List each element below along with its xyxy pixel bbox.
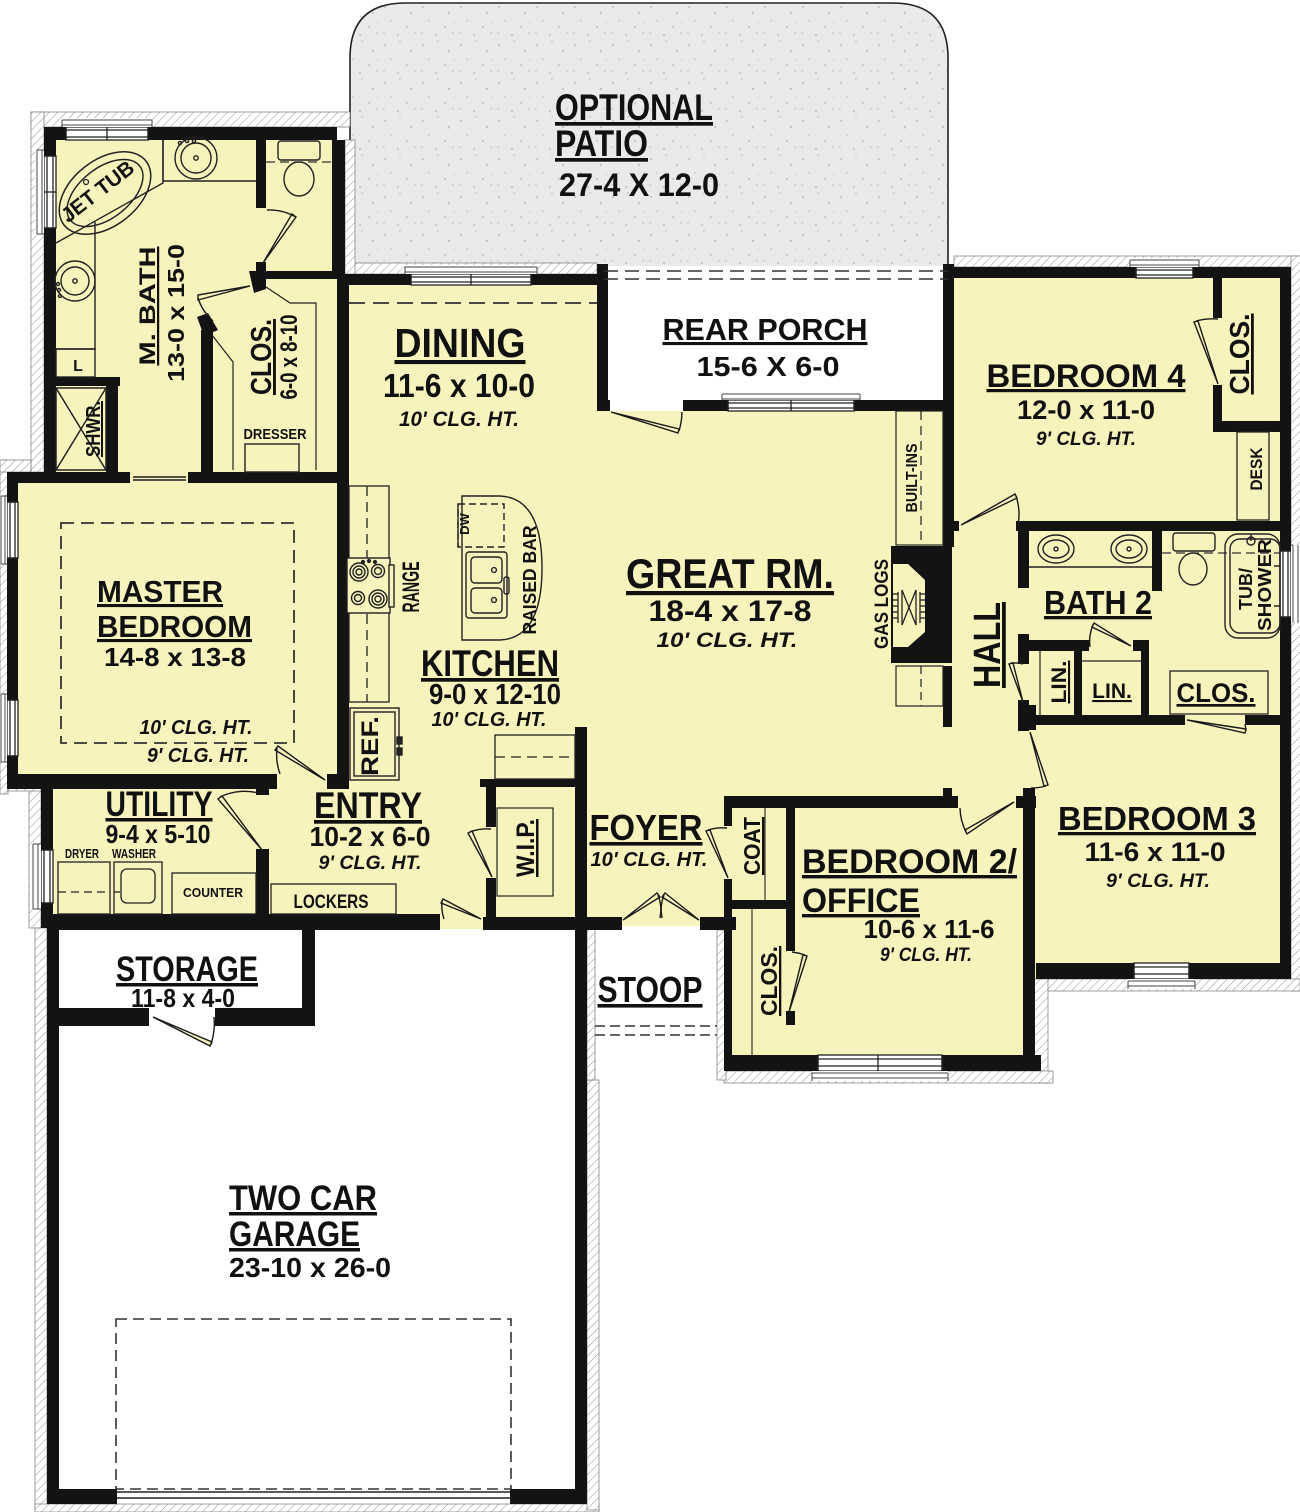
svg-text:10' CLG. HT.: 10' CLG. HT.	[399, 408, 519, 431]
svg-text:WASHER: WASHER	[112, 846, 156, 861]
svg-text:CLOS.: CLOS.	[246, 319, 278, 395]
svg-text:23-10 x 26-0: 23-10 x 26-0	[229, 1252, 391, 1283]
svg-text:9' CLG. HT.: 9' CLG. HT.	[147, 745, 249, 767]
svg-text:BATH 2: BATH 2	[1044, 584, 1152, 621]
svg-text:DESK: DESK	[1247, 447, 1266, 491]
svg-text:RANGE: RANGE	[398, 562, 425, 613]
svg-text:BEDROOM 4: BEDROOM 4	[987, 358, 1186, 394]
svg-text:11-8 x 4-0: 11-8 x 4-0	[131, 983, 235, 1013]
svg-text:BEDROOM 3: BEDROOM 3	[1058, 800, 1256, 837]
svg-text:HALL: HALL	[967, 602, 1009, 688]
svg-text:11-6 x 10-0: 11-6 x 10-0	[383, 367, 535, 404]
svg-text:LIN.: LIN.	[1048, 661, 1071, 704]
svg-text:CLOS.: CLOS.	[1224, 314, 1255, 395]
svg-text:11-6 x 11-0: 11-6 x 11-0	[1085, 837, 1226, 867]
svg-text:9-0 x 12-10: 9-0 x 12-10	[429, 679, 561, 711]
svg-text:10' CLG. HT.: 10' CLG. HT.	[591, 849, 708, 871]
svg-text:M. BATH: M. BATH	[135, 247, 160, 366]
svg-text:L: L	[73, 358, 83, 375]
svg-text:PATIO: PATIO	[555, 123, 648, 164]
svg-text:SHWR.: SHWR.	[83, 401, 105, 457]
svg-text:10' CLG. HT.: 10' CLG. HT.	[140, 717, 253, 739]
svg-text:FOYER: FOYER	[590, 807, 703, 848]
svg-text:9' CLG. HT.: 9' CLG. HT.	[319, 853, 422, 874]
svg-text:LOCKERS: LOCKERS	[294, 892, 369, 913]
svg-text:9' CLG. HT.: 9' CLG. HT.	[880, 945, 972, 966]
svg-text:ENTRY: ENTRY	[314, 785, 422, 826]
svg-text:CLOS.: CLOS.	[756, 946, 782, 1016]
svg-text:27-4 X 12-0: 27-4 X 12-0	[559, 167, 719, 203]
svg-text:10' CLG. HT.: 10' CLG. HT.	[432, 709, 547, 731]
svg-text:10-6 x 11-6: 10-6 x 11-6	[864, 914, 995, 944]
svg-text:GARAGE: GARAGE	[229, 1215, 360, 1254]
svg-text:DW: DW	[457, 512, 472, 534]
svg-text:TWO CAR: TWO CAR	[229, 1179, 377, 1218]
svg-text:10-2 x 6-0: 10-2 x 6-0	[310, 821, 431, 852]
svg-text:CLOS.: CLOS.	[1177, 678, 1256, 708]
svg-text:KITCHEN: KITCHEN	[421, 643, 559, 684]
svg-text:SHOWER: SHOWER	[1255, 539, 1275, 631]
svg-text:GREAT RM.: GREAT RM.	[626, 550, 834, 597]
svg-text:13-0 x 15-0: 13-0 x 15-0	[163, 244, 189, 382]
svg-text:9' CLG. HT.: 9' CLG. HT.	[1036, 429, 1136, 450]
svg-text:STOOP: STOOP	[598, 969, 703, 1010]
svg-text:COAT: COAT	[739, 817, 765, 875]
svg-text:18-4 x 17-8: 18-4 x 17-8	[649, 595, 812, 628]
svg-text:REF.: REF.	[357, 716, 384, 776]
svg-text:BUILT-INS: BUILT-INS	[904, 443, 921, 512]
svg-text:DINING: DINING	[395, 320, 526, 366]
svg-text:W.I.P.: W.I.P.	[512, 819, 540, 877]
svg-text:REAR PORCH: REAR PORCH	[663, 312, 868, 347]
svg-text:15-6 X 6-0: 15-6 X 6-0	[697, 351, 840, 382]
svg-text:9-4 x 5-10: 9-4 x 5-10	[106, 819, 211, 849]
svg-text:DRESSER: DRESSER	[244, 426, 307, 443]
svg-text:6-0 x 8-10: 6-0 x 8-10	[276, 315, 303, 400]
svg-text:OPTIONAL: OPTIONAL	[555, 87, 713, 128]
svg-text:LIN.: LIN.	[1092, 680, 1132, 703]
svg-text:10' CLG. HT.: 10' CLG. HT.	[657, 629, 798, 652]
svg-text:GAS LOGS: GAS LOGS	[872, 559, 893, 649]
svg-text:9' CLG. HT.: 9' CLG. HT.	[1106, 871, 1210, 892]
svg-text:12-0 x 11-0: 12-0 x 11-0	[1017, 395, 1155, 425]
svg-text:14-8 x 13-8: 14-8 x 13-8	[104, 642, 246, 672]
svg-text:DRYER: DRYER	[65, 846, 99, 861]
svg-text:MASTER: MASTER	[97, 574, 223, 609]
svg-text:BEDROOM 2/: BEDROOM 2/	[802, 843, 1018, 881]
svg-text:RAISED BAR: RAISED BAR	[520, 526, 540, 635]
svg-text:COUNTER: COUNTER	[183, 885, 244, 900]
svg-text:BEDROOM: BEDROOM	[97, 609, 252, 644]
svg-text:TUB/: TUB/	[1236, 568, 1256, 610]
